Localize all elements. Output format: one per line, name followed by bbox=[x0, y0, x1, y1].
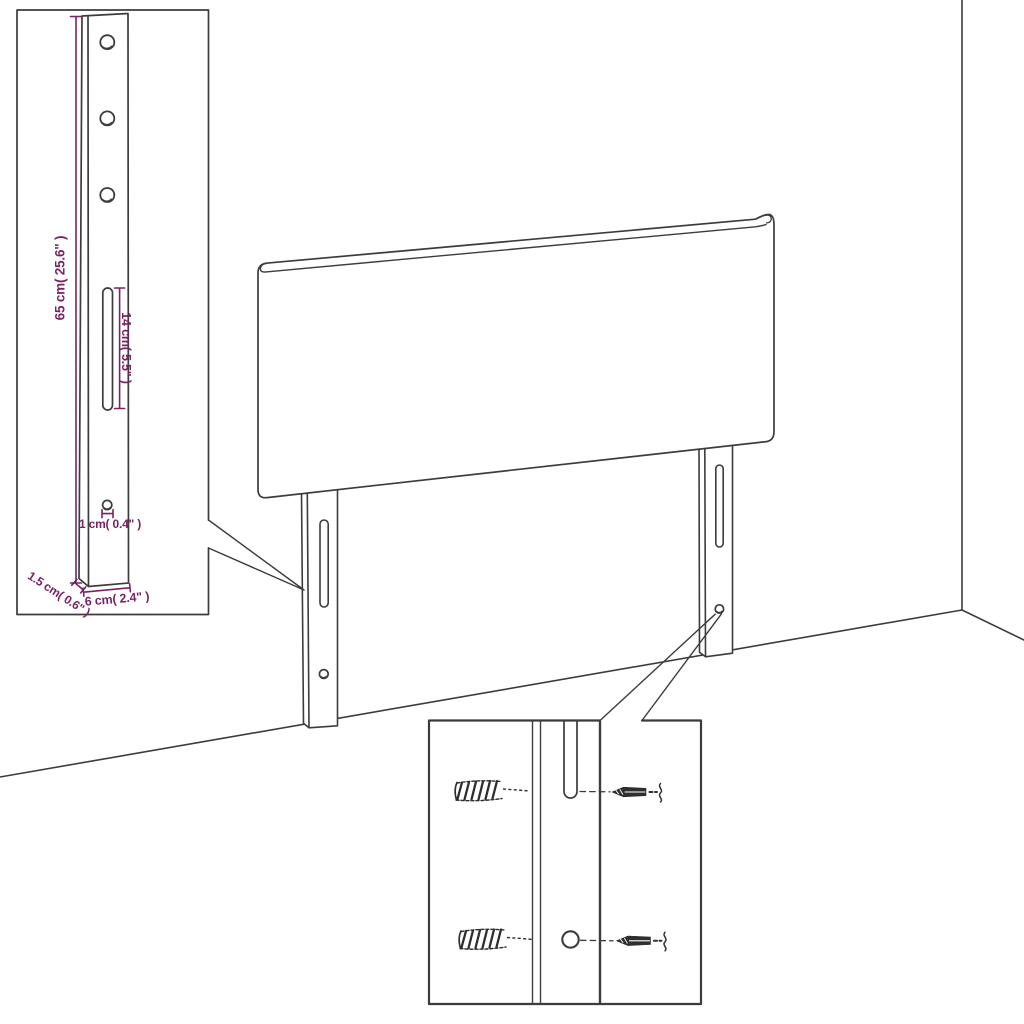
floor-line-left bbox=[0, 610, 962, 777]
headboard-panel bbox=[258, 215, 774, 498]
leader-dash-lower bbox=[581, 940, 614, 941]
right-leg-slot bbox=[716, 465, 723, 547]
inset-mounting-detail bbox=[429, 721, 701, 1005]
floor-line-right bbox=[962, 610, 1024, 640]
callout-lines bbox=[209, 520, 722, 721]
screw-icon-lower bbox=[617, 932, 667, 951]
wall-plug-icon-lower bbox=[459, 929, 534, 949]
dimension-label-slot-length: 14 cm( 5.5" ) bbox=[119, 312, 133, 383]
screw-icon bbox=[612, 784, 662, 803]
headboard-assembly-diagram: 65 cm( 25.6" ) 14 cm( 5.5" ) 1 cm( 0.4" … bbox=[0, 0, 1024, 1024]
dimension-label-post-height: 65 cm( 25.6" ) bbox=[53, 236, 68, 321]
left-leg-slot bbox=[320, 520, 328, 607]
left-mounting-leg bbox=[302, 489, 338, 728]
inset-mounting-box bbox=[429, 721, 701, 1005]
dimension-label-hole-diameter: 1 cm( 0.4" ) bbox=[79, 517, 141, 531]
wall-plug-icon bbox=[455, 781, 530, 801]
inset-leg-slot bbox=[564, 722, 577, 799]
inset-leg-hole bbox=[562, 931, 578, 947]
diagram-linework bbox=[0, 0, 1024, 1024]
inset-leg-edges bbox=[533, 722, 541, 1004]
